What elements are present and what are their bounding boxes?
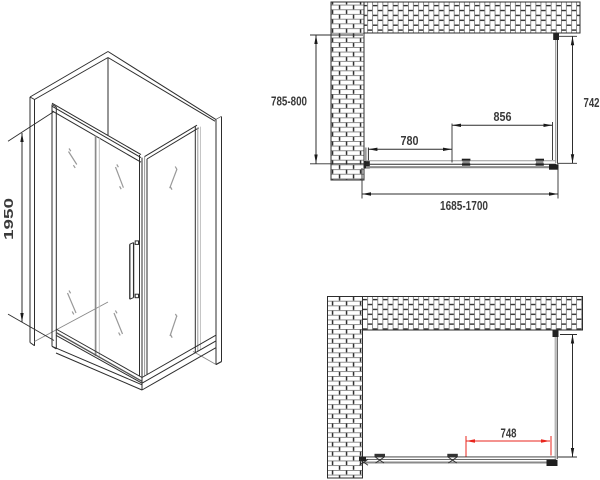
svg-text:856: 856: [494, 110, 512, 124]
svg-text:1685-1700: 1685-1700: [440, 199, 488, 213]
svg-text:785-800: 785-800: [271, 95, 307, 109]
svg-text:1950: 1950: [2, 198, 16, 240]
svg-text:748: 748: [501, 427, 517, 441]
svg-text:780: 780: [401, 134, 419, 148]
svg-text:742: 742: [584, 96, 600, 110]
